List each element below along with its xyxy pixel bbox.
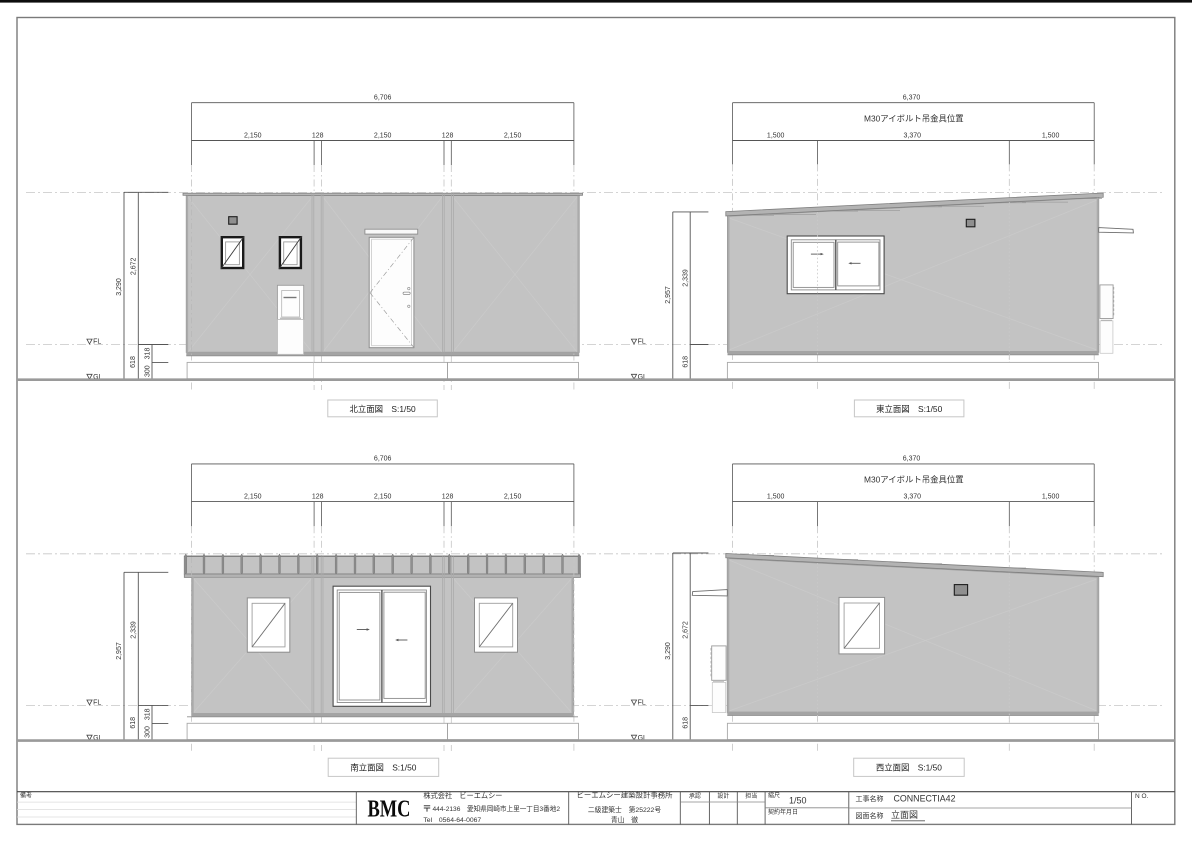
- svg-text:6,370: 6,370: [903, 456, 921, 463]
- svg-text:1,500: 1,500: [767, 132, 785, 139]
- svg-text:FL: FL: [638, 700, 646, 707]
- svg-text:M30アイボルト吊金具位置: M30アイボルト吊金具位置: [864, 475, 964, 485]
- svg-text:318: 318: [144, 348, 151, 360]
- svg-text:2,339: 2,339: [131, 621, 138, 639]
- svg-text:西立面図 S:1/50: 西立面図 S:1/50: [876, 763, 942, 773]
- svg-text:図面名称: 図面名称: [856, 811, 884, 820]
- svg-text:2,150: 2,150: [244, 493, 262, 500]
- svg-text:618: 618: [130, 717, 137, 729]
- svg-text:2,150: 2,150: [504, 132, 522, 139]
- svg-text:2,339: 2,339: [682, 269, 689, 287]
- svg-text:FL: FL: [93, 700, 101, 707]
- svg-text:立面図: 立面図: [891, 809, 918, 820]
- svg-text:N O.: N O.: [1135, 793, 1149, 800]
- svg-text:縮尺: 縮尺: [768, 792, 780, 800]
- svg-text:618: 618: [130, 356, 137, 368]
- svg-text:南立面図 S:1/50: 南立面図 S:1/50: [350, 763, 416, 773]
- svg-text:青山 徹: 青山 徹: [611, 815, 638, 824]
- svg-text:6,370: 6,370: [903, 95, 921, 102]
- svg-text:契約年月日: 契約年月日: [768, 808, 798, 816]
- svg-text:618: 618: [682, 356, 689, 368]
- svg-text:2,672: 2,672: [682, 621, 689, 639]
- svg-text:1,500: 1,500: [767, 493, 785, 500]
- svg-text:FL: FL: [93, 339, 101, 346]
- svg-text:1,500: 1,500: [1042, 132, 1060, 139]
- svg-text:444-2136 愛知県岡崎市上里一丁目3番地2: 444-2136 愛知県岡崎市上里一丁目3番地2: [433, 804, 561, 813]
- svg-text:2,150: 2,150: [374, 493, 392, 500]
- svg-text:6,706: 6,706: [374, 456, 392, 463]
- svg-text:1/50: 1/50: [789, 796, 807, 806]
- svg-text:2,957: 2,957: [665, 286, 672, 304]
- svg-text:工事名称: 工事名称: [856, 794, 884, 803]
- svg-text:2,957: 2,957: [116, 642, 123, 660]
- svg-text:128: 128: [312, 493, 324, 500]
- svg-text:128: 128: [442, 132, 454, 139]
- svg-text:Tel 0564-64-0067: Tel 0564-64-0067: [423, 817, 481, 824]
- svg-text:東立面図 S:1/50: 東立面図 S:1/50: [876, 404, 942, 414]
- svg-text:担当: 担当: [745, 792, 757, 800]
- svg-text:2,150: 2,150: [244, 132, 262, 139]
- svg-text:6,706: 6,706: [374, 95, 392, 102]
- svg-text:BMC: BMC: [368, 797, 411, 823]
- svg-text:承認: 承認: [689, 792, 701, 800]
- svg-text:128: 128: [442, 493, 454, 500]
- svg-text:3,370: 3,370: [904, 132, 922, 139]
- svg-text:二級建築士 第25222号: 二級建築士 第25222号: [588, 805, 661, 814]
- svg-text:CONNECTIA42: CONNECTIA42: [894, 793, 956, 803]
- svg-text:2,672: 2,672: [131, 257, 138, 275]
- svg-text:FL: FL: [638, 339, 646, 346]
- svg-text:備考: 備考: [20, 792, 32, 800]
- svg-text:M30アイボルト吊金具位置: M30アイボルト吊金具位置: [864, 114, 964, 124]
- svg-text:1,500: 1,500: [1042, 493, 1060, 500]
- svg-text:318: 318: [144, 708, 151, 720]
- svg-text:2,150: 2,150: [504, 493, 522, 500]
- svg-text:株式会社 ビーエムシー: 株式会社 ビーエムシー: [423, 791, 502, 800]
- svg-text:2,150: 2,150: [374, 132, 392, 139]
- svg-text:設計: 設計: [717, 792, 729, 800]
- svg-text:300: 300: [144, 726, 151, 738]
- svg-text:300: 300: [144, 365, 151, 377]
- svg-text:3,290: 3,290: [665, 642, 672, 660]
- svg-text:ビーエムシー建築設計事務所: ビーエムシー建築設計事務所: [576, 791, 673, 800]
- svg-text:618: 618: [682, 717, 689, 729]
- svg-text:128: 128: [312, 132, 324, 139]
- svg-text:3,370: 3,370: [904, 493, 922, 500]
- svg-text:北立面図 S:1/50: 北立面図 S:1/50: [350, 404, 416, 414]
- svg-text:3,290: 3,290: [116, 278, 123, 296]
